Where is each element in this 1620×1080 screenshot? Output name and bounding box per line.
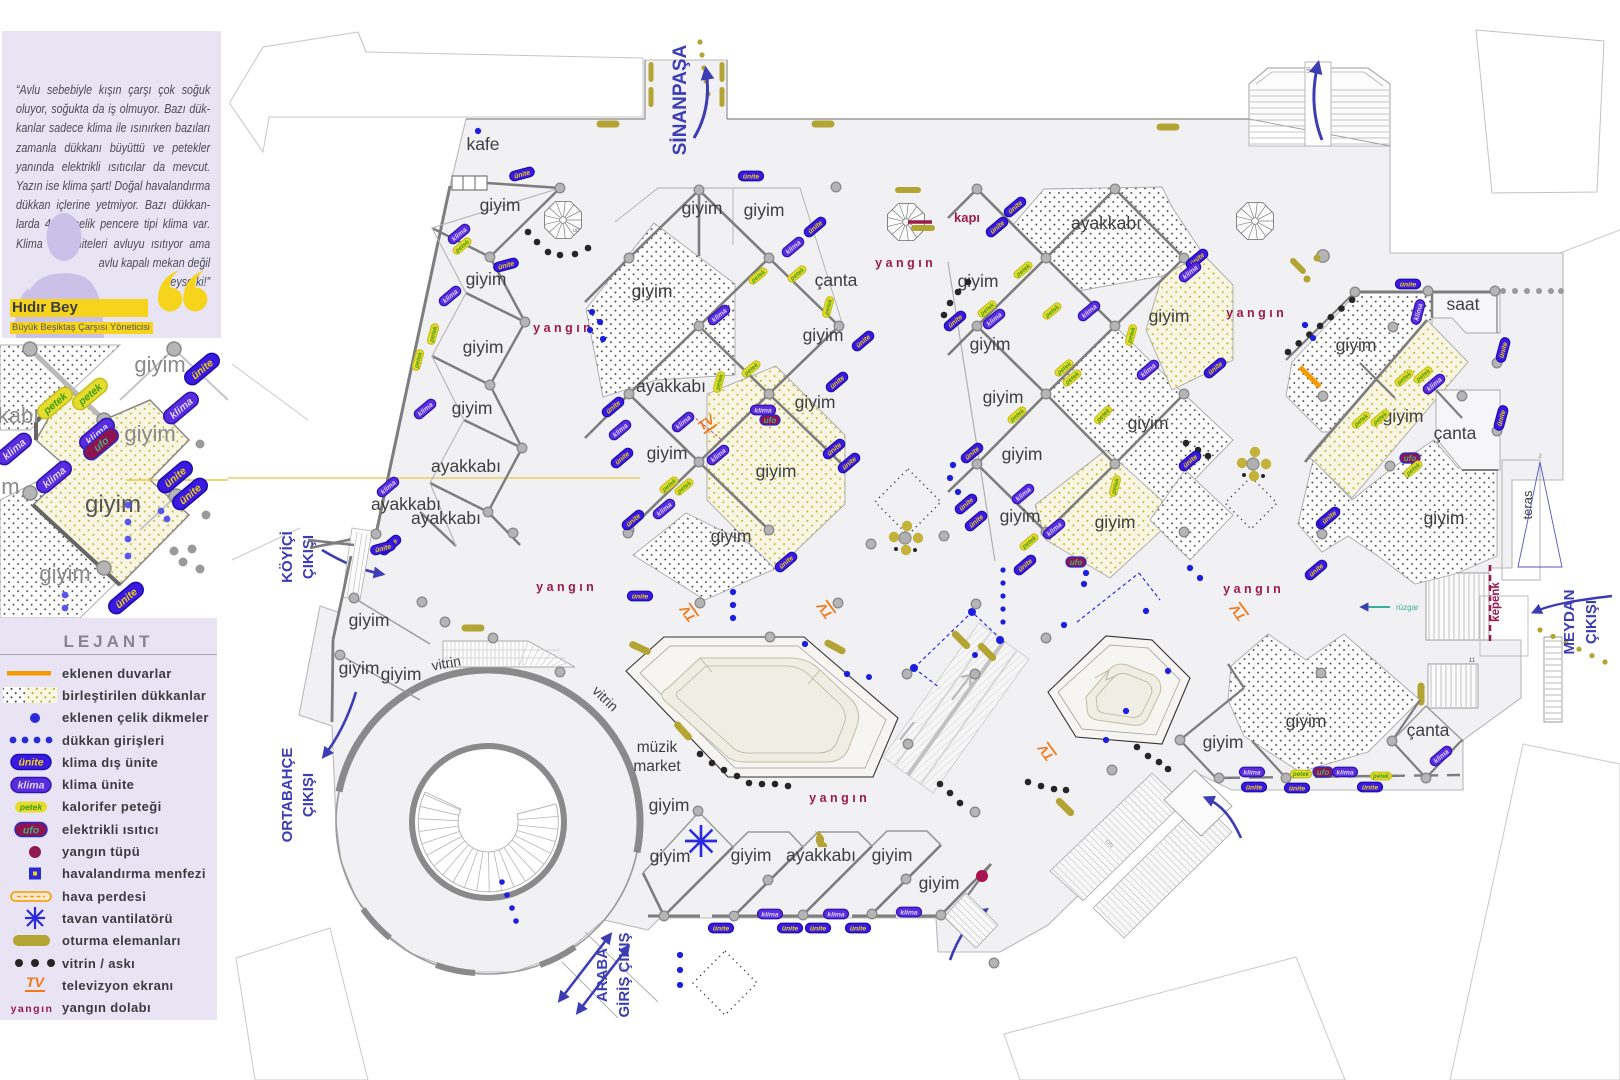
svg-text:giyim: giyim (1149, 306, 1190, 326)
svg-text:müzik: müzik (637, 739, 678, 756)
svg-text:ünite: ünite (1400, 281, 1416, 288)
svg-text:giyim: giyim (795, 392, 836, 412)
svg-text:ORTABAHÇE: ORTABAHÇE (279, 748, 296, 843)
svg-text:giyim: giyim (1095, 512, 1136, 532)
svg-text:giyim: giyim (958, 271, 999, 291)
svg-text:giyim: giyim (339, 658, 380, 678)
svg-text:kkabı: kkabı (0, 403, 39, 428)
svg-text:SİNANPAŞA: SİNANPAŞA (670, 44, 691, 155)
svg-text:giyim: giyim (480, 195, 521, 215)
svg-text:ünite: ünite (1246, 784, 1262, 791)
svg-text:ünite: ünite (1362, 784, 1378, 791)
svg-text:ünite: ünite (782, 925, 798, 932)
svg-text:giyim: giyim (970, 334, 1011, 354)
svg-text:giyim: giyim (650, 846, 691, 866)
svg-text:kepenk: kepenk (1490, 582, 1502, 622)
svg-text:giyim: giyim (452, 398, 493, 418)
svg-text:im: im (0, 474, 20, 499)
svg-text:giyim: giyim (1128, 413, 1169, 433)
svg-text:giyim: giyim (872, 845, 913, 865)
svg-text:giyim: giyim (983, 387, 1024, 407)
svg-text:giyim: giyim (756, 461, 797, 481)
svg-text:giyim: giyim (1203, 732, 1244, 752)
svg-text:ünite: ünite (713, 925, 729, 932)
svg-text:giyim: giyim (731, 845, 772, 865)
svg-text:petek: petek (19, 802, 43, 812)
svg-text:giyim: giyim (1002, 444, 1043, 464)
svg-text:giyim: giyim (1286, 711, 1327, 731)
svg-text:y a n g ı n: y a n g ı n (809, 791, 867, 805)
svg-text:klima: klima (900, 909, 918, 916)
svg-text:giyim: giyim (803, 325, 844, 345)
svg-text:y a n g ı n: y a n g ı n (1223, 582, 1281, 596)
svg-text:giyim: giyim (134, 352, 185, 377)
svg-text:petek: petek (1292, 771, 1310, 778)
svg-text:GİRİŞ ÇIKIŞ: GİRİŞ ÇIKIŞ (616, 932, 633, 1017)
svg-text:klima: klima (761, 911, 779, 918)
svg-text:ünite: ünite (743, 173, 759, 180)
svg-text:giyim: giyim (1336, 335, 1377, 355)
svg-text:y a n g ı n: y a n g ı n (1226, 306, 1284, 320)
svg-text:klima: klima (754, 407, 772, 414)
svg-text:giyim: giyim (711, 526, 752, 546)
svg-text:KÖYİÇİ: KÖYİÇİ (279, 531, 296, 583)
svg-text:giyim: giyim (1000, 506, 1041, 526)
svg-text:ünite: ünite (850, 925, 866, 932)
svg-text:rüzgar: rüzgar (1396, 603, 1419, 612)
svg-text:giyim: giyim (682, 198, 723, 218)
svg-text:ARABA: ARABA (594, 948, 611, 1002)
svg-text:11: 11 (1469, 658, 1476, 664)
svg-text:saat: saat (1446, 294, 1479, 314)
svg-text:çanta: çanta (1407, 720, 1450, 740)
svg-text:klima: klima (18, 779, 45, 791)
svg-text:ünite: ünite (632, 593, 648, 600)
svg-text:giyim: giyim (632, 281, 673, 301)
svg-text:yangın: yangın (11, 1003, 54, 1015)
svg-text:ayakkabı: ayakkabı (636, 376, 706, 396)
svg-text:TV: TV (26, 975, 46, 990)
svg-text:market: market (633, 758, 681, 775)
svg-text:ünite: ünite (18, 757, 43, 769)
svg-text:klima: klima (1336, 769, 1354, 776)
svg-text:ufo: ufo (1070, 558, 1083, 567)
svg-text:ayakkabı: ayakkabı (411, 508, 481, 528)
svg-text:giyim: giyim (647, 443, 688, 463)
svg-text:klima: klima (1243, 769, 1261, 776)
svg-text:ayakkabı: ayakkabı (786, 845, 856, 865)
svg-text:MEYDAN: MEYDAN (1561, 589, 1578, 654)
svg-text:petek: petek (1372, 773, 1390, 780)
svg-text:ünite: ünite (810, 925, 826, 932)
svg-text:y a n g ı n: y a n g ı n (536, 580, 594, 594)
svg-text:ayakkabı: ayakkabı (431, 456, 501, 476)
svg-text:up: up (573, 228, 580, 234)
svg-text:giyim: giyim (463, 337, 504, 357)
svg-text:giyim: giyim (349, 610, 390, 630)
svg-text:giyim: giyim (919, 873, 960, 893)
svg-text:giyim: giyim (381, 664, 422, 684)
svg-text:çanta: çanta (1434, 423, 1477, 443)
svg-text:ayakkabı: ayakkabı (1071, 213, 1141, 233)
svg-text:giyim: giyim (39, 561, 90, 586)
svg-text:ufo: ufo (1404, 454, 1417, 463)
svg-text:ÇIKIŞI: ÇIKIŞI (300, 773, 317, 817)
svg-text:klima: klima (827, 911, 845, 918)
svg-text:çanta: çanta (815, 270, 858, 290)
svg-text:ÇIKIŞI: ÇIKIŞI (1583, 600, 1600, 644)
svg-text:giyim: giyim (85, 491, 141, 518)
svg-text:kapı: kapı (954, 210, 980, 225)
svg-text:y a n g ı n: y a n g ı n (533, 321, 591, 335)
svg-text:giyim: giyim (744, 200, 785, 220)
svg-text:y a n g ı n: y a n g ı n (875, 256, 933, 270)
svg-text:giyim: giyim (124, 421, 175, 446)
svg-text:giyim: giyim (649, 795, 690, 815)
svg-text:ünite: ünite (1289, 785, 1305, 792)
svg-text:ufo: ufo (1317, 768, 1330, 777)
svg-text:up: up (1306, 66, 1312, 73)
svg-text:ufo: ufo (23, 824, 40, 836)
svg-text:giyim: giyim (1424, 508, 1465, 528)
svg-text:ufo: ufo (764, 416, 777, 425)
svg-text:kafe: kafe (466, 134, 499, 154)
